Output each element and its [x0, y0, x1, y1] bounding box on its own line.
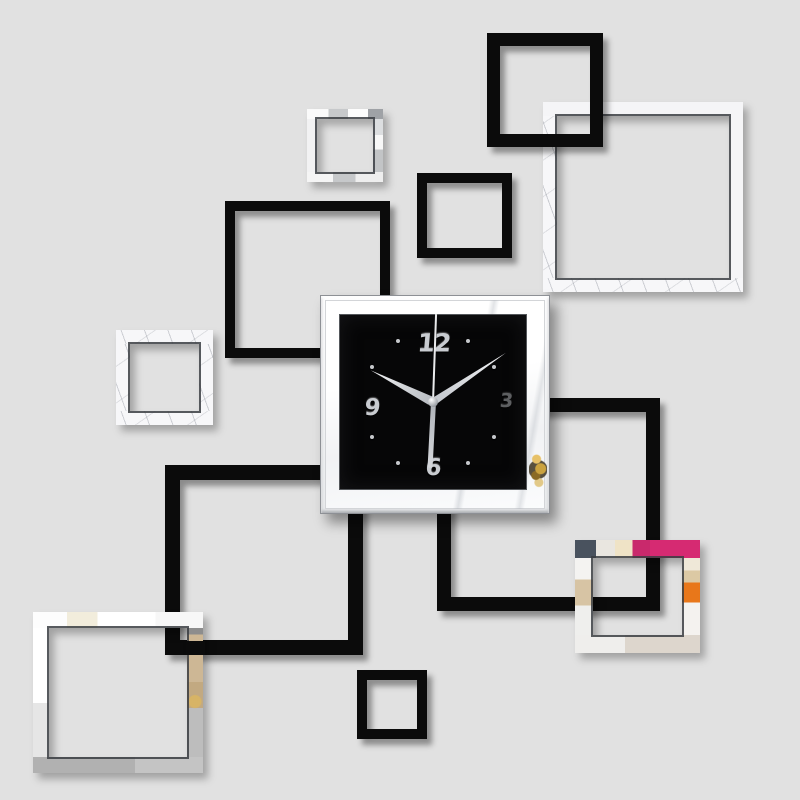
clock-face: 12 3 6 9: [339, 314, 527, 490]
mirror-square-left-right-strip: [199, 344, 213, 411]
black-square-left-left-strip: [225, 211, 235, 348]
mirror-square-top-small-inner-edge: [315, 117, 375, 174]
black-square-small-bottom: [357, 670, 427, 739]
gold-flower-reflection: [529, 451, 547, 488]
black-square-top-bottom-strip: [487, 134, 603, 147]
mirror-square-left-inner-edge: [128, 342, 201, 413]
black-square-top-left-strip: [487, 46, 500, 134]
mirror-square-colorful-bottom-strip: [575, 635, 700, 653]
hour-dot: [370, 365, 374, 369]
hour-dot: [466, 339, 470, 343]
numeral-9: 9: [363, 395, 380, 421]
mirror-square-bottom-left-bottom-strip: [33, 757, 203, 773]
scene: 12 3 6 9: [0, 0, 800, 800]
mirror-square-colorful-inner-edge: [591, 556, 684, 637]
black-square-mid-left-strip: [417, 183, 427, 248]
black-square-small-bottom-bottom-strip: [357, 729, 427, 739]
black-square-mid-bottom-strip: [417, 248, 512, 258]
mirror-square-left: [116, 330, 213, 425]
mirror-square-bottom-left-inner-edge: [47, 626, 189, 759]
mirror-square-left-bottom-strip: [116, 411, 213, 425]
black-square-mid: [417, 173, 512, 258]
numeral-3: 3: [499, 390, 513, 412]
mirror-square-top-small: [307, 109, 383, 182]
hour-dot: [466, 461, 470, 465]
black-square-top-right-strip: [590, 46, 603, 134]
mirror-square-top-right-right-strip: [729, 116, 743, 278]
black-square-mid-right-strip: [502, 183, 512, 248]
hour-dot: [492, 365, 496, 369]
black-square-top-top-strip: [487, 33, 603, 46]
mirror-square-colorful-right-strip: [682, 558, 700, 635]
hour-dot: [396, 339, 400, 343]
mirror-square-top-right-bottom-strip: [543, 278, 743, 292]
center-hub: [428, 397, 438, 407]
mirror-square-bottom-left: [33, 612, 203, 773]
second-hand: [432, 314, 437, 402]
wall-clock: 12 3 6 9: [320, 295, 550, 514]
hour-dot: [396, 461, 400, 465]
hour-dot: [492, 435, 496, 439]
black-square-small-bottom-left-strip: [357, 680, 367, 729]
black-square-small-bottom-top-strip: [357, 670, 427, 680]
black-square-small-bottom-right-strip: [417, 680, 427, 729]
black-square-mid-top-strip: [417, 173, 512, 183]
hour-dot: [370, 435, 374, 439]
black-square-top: [487, 33, 603, 147]
black-square-left-top-strip: [225, 201, 390, 211]
black-bar-patch: [186, 641, 205, 655]
mirror-square-colorful: [575, 540, 700, 653]
